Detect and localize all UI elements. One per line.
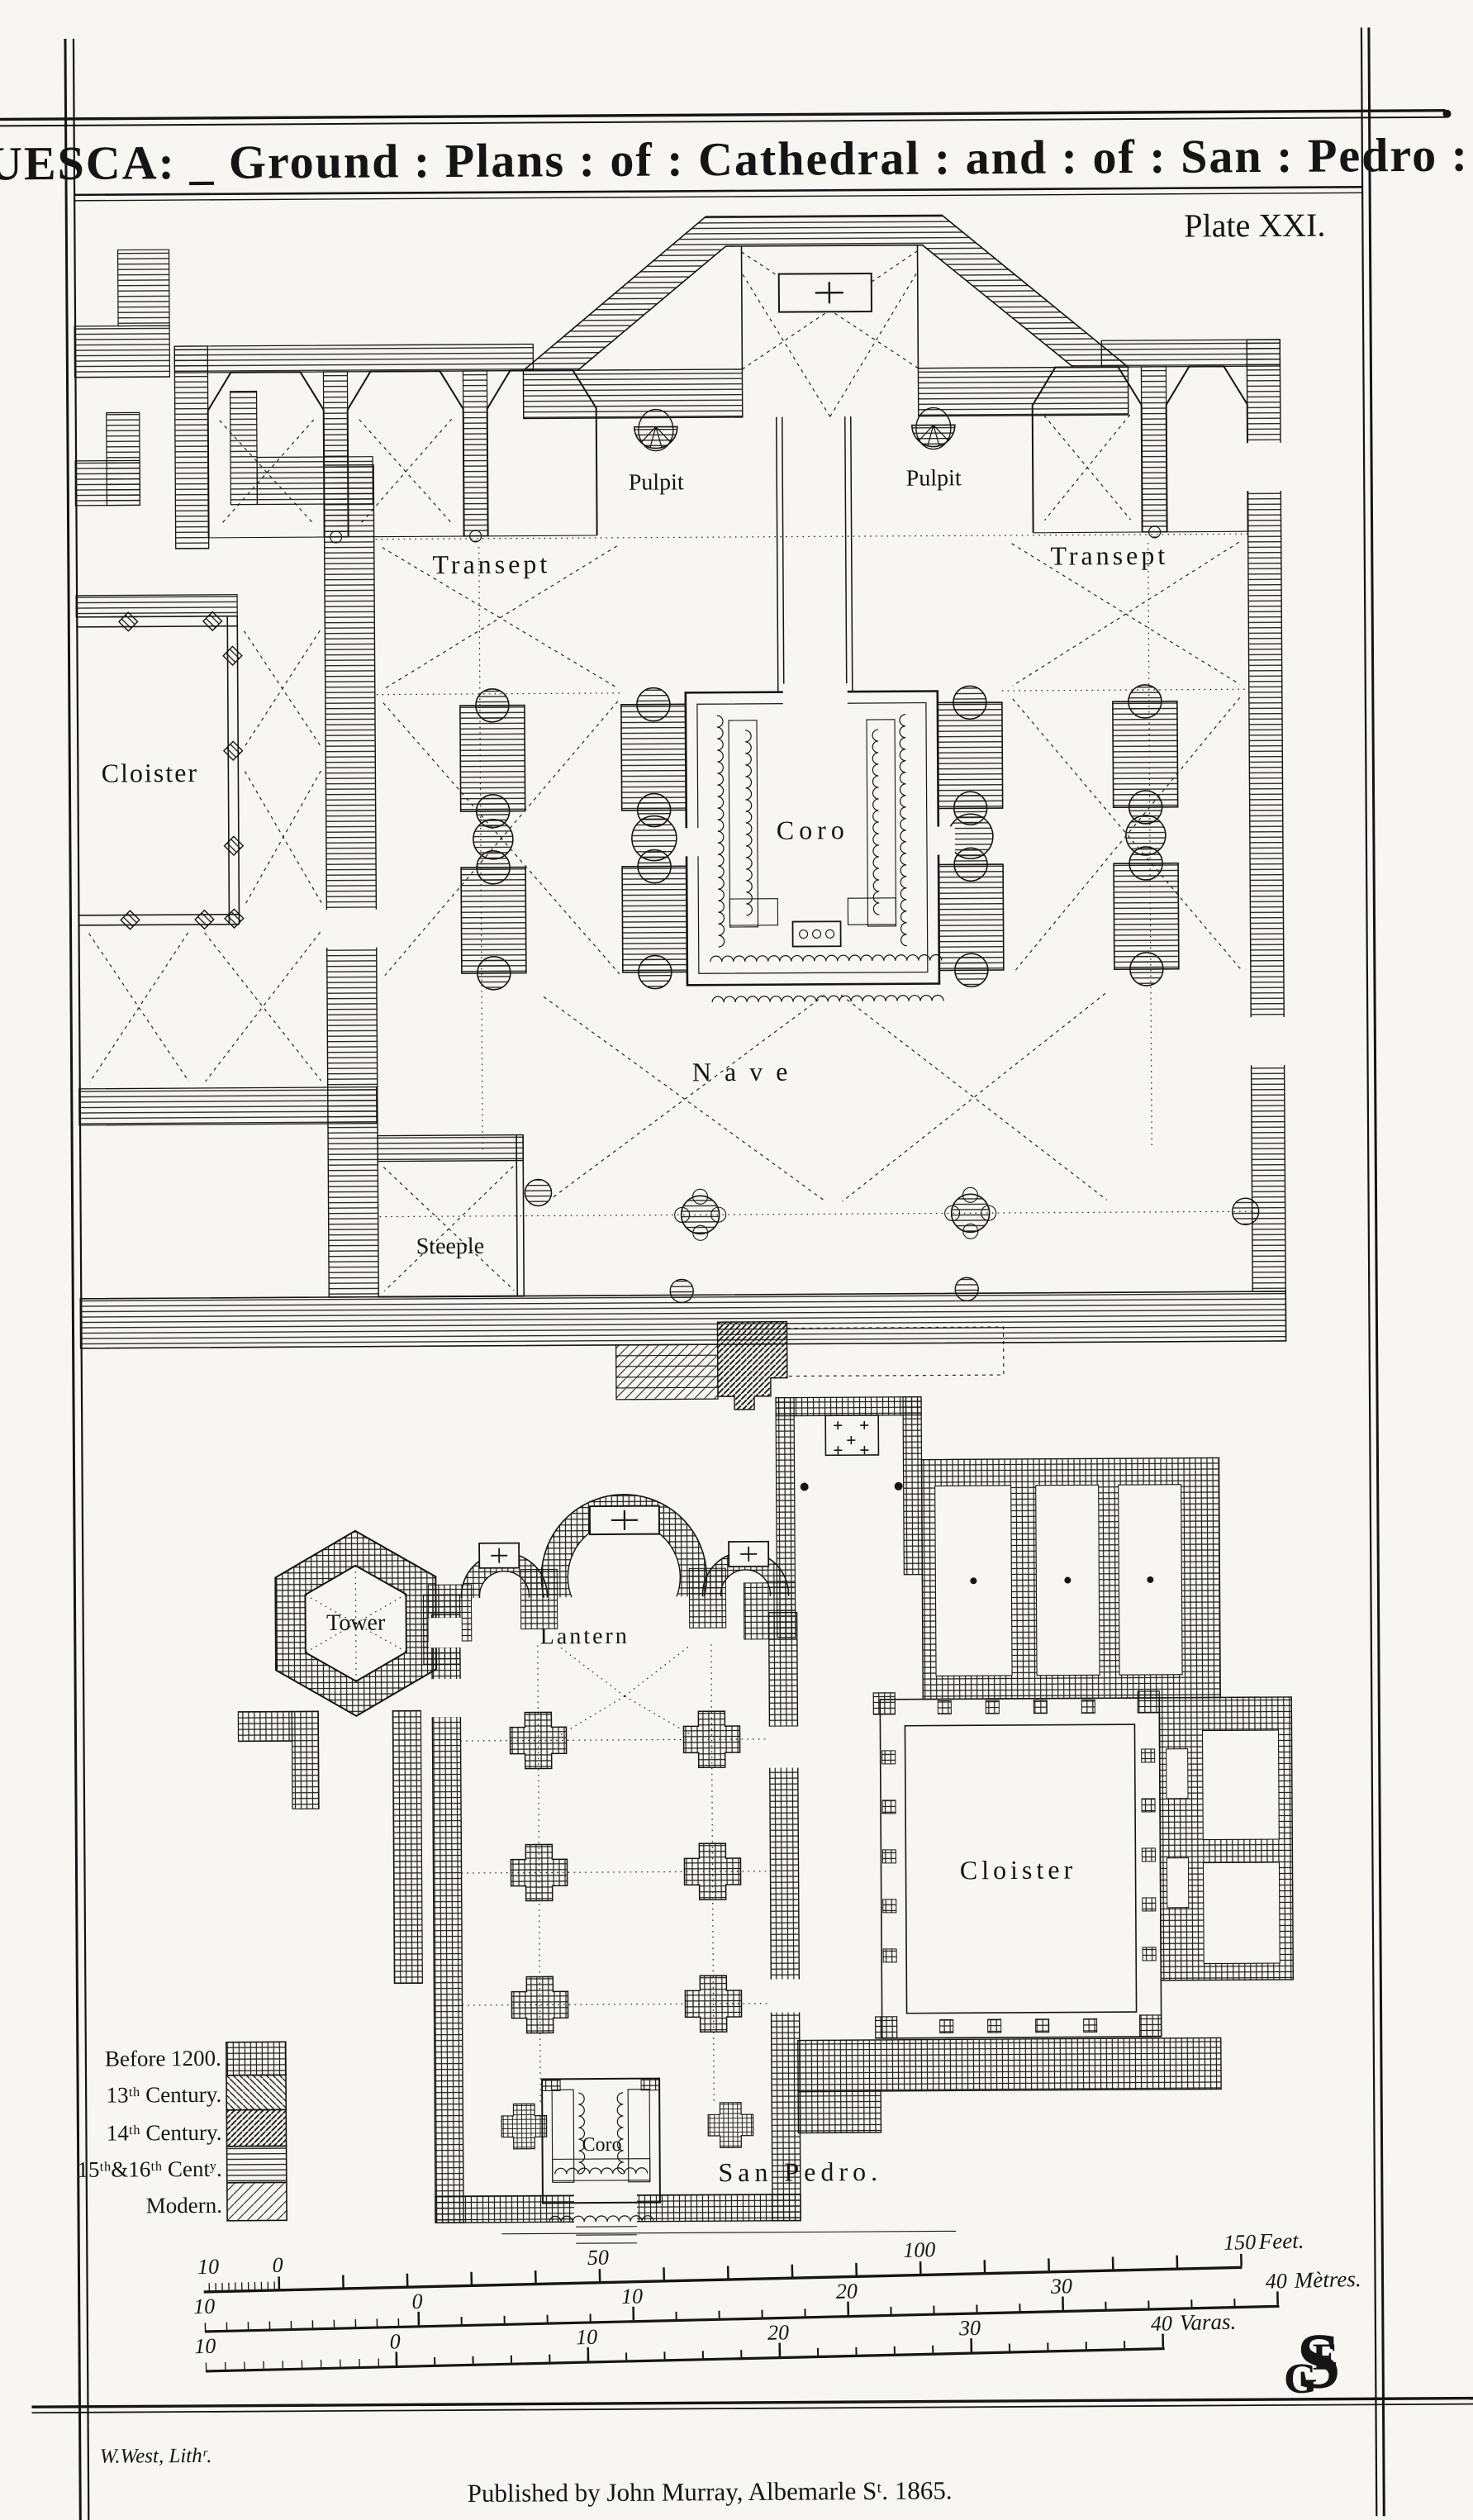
sp-coro-label: Coro	[582, 2134, 621, 2156]
feet-tick-150: 100	[903, 2237, 936, 2262]
sp-chapel-altar	[825, 1415, 878, 1455]
feet-tick-150: 150	[1224, 2230, 1257, 2255]
west-door-gap	[320, 910, 383, 948]
lantern-label: Lantern	[540, 1624, 630, 1650]
feet-tick-50: 50	[587, 2245, 610, 2270]
west-wall	[324, 465, 378, 1297]
lithographer-credit: W.West, Lithʳ.	[100, 2445, 212, 2468]
feet-unit: Feet.	[1257, 2228, 1304, 2254]
legend-swatch-15th-16th	[227, 2146, 287, 2182]
feet-tick-10: 10	[197, 2255, 220, 2280]
publisher-credit: Published by John Murray, Albemarle Sᵗ. …	[468, 2475, 953, 2508]
metres-tick: 0	[411, 2289, 423, 2313]
coro-lectern	[793, 921, 841, 946]
san-pedro-caption: San Pedro.	[718, 2156, 882, 2187]
metres-unit: Mètres.	[1293, 2266, 1361, 2293]
east-door-gap-2	[1244, 1017, 1290, 1065]
legend-label-15th-16th: 15ᵗʰ&16ᵗʰ Centʸ.	[77, 2156, 221, 2182]
legend-label-13th: 13ᵗʰ Century.	[106, 2082, 221, 2108]
east-door-gap-1	[1241, 443, 1287, 491]
cloister-label: Cloister	[102, 758, 199, 788]
plate-drawing: HUESCA: _ Ground : Plans : of : Cathedra…	[0, 0, 1473, 2520]
legend-label-before-1200: Before 1200.	[105, 2046, 221, 2071]
metres-tick: 40	[1265, 2269, 1287, 2294]
coro-label: Coro	[777, 815, 849, 845]
transept-left-label: Transept	[432, 549, 550, 579]
varas-tick: 10	[194, 2334, 216, 2359]
metres-tick: 20	[836, 2279, 858, 2304]
sp-cloister: Cloister	[873, 1691, 1162, 2038]
legend-swatch-14th	[226, 2109, 286, 2146]
pulpit-left-label: Pulpit	[629, 469, 684, 495]
varas-tick: 40	[1151, 2311, 1173, 2336]
legend-swatch-13th	[226, 2075, 286, 2109]
sp-cloister-label: Cloister	[960, 1854, 1077, 1885]
plate-number: Plate XXI.	[1184, 207, 1325, 245]
plate-title: HUESCA: _ Ground : Plans : of : Cathedra…	[0, 128, 1469, 191]
plate-page: HUESCA: _ Ground : Plans : of : Cathedra…	[0, 0, 1473, 2520]
pulpit-right-label: Pulpit	[906, 465, 962, 491]
rule-end-dot	[1443, 110, 1452, 118]
varas-tick: 10	[576, 2325, 598, 2350]
portal-steps	[616, 1344, 718, 1400]
metres-tick: 10	[621, 2284, 644, 2308]
varas-tick: 0	[389, 2329, 401, 2353]
steeple-label: Steeple	[416, 1234, 485, 1260]
monogram-letter-s: S	[1296, 2317, 1341, 2405]
varas-tick: 20	[767, 2320, 790, 2345]
legend-label-14th: 14ᵗʰ Century.	[107, 2120, 222, 2146]
legend-swatch-modern	[227, 2182, 287, 2220]
nave-label: Nave	[692, 1057, 801, 1087]
legend-label-modern: Modern.	[146, 2193, 222, 2218]
feet-tick-0: 0	[272, 2253, 283, 2277]
varas-unit: Varas.	[1180, 2309, 1237, 2336]
legend-swatch-before-1200	[226, 2042, 286, 2075]
varas-tick: 30	[958, 2316, 981, 2341]
metres-tick: 10	[193, 2294, 216, 2319]
transept-right-label: Transept	[1050, 540, 1168, 571]
tower-label: Tower	[326, 1610, 386, 1636]
metres-tick: 30	[1050, 2274, 1073, 2299]
